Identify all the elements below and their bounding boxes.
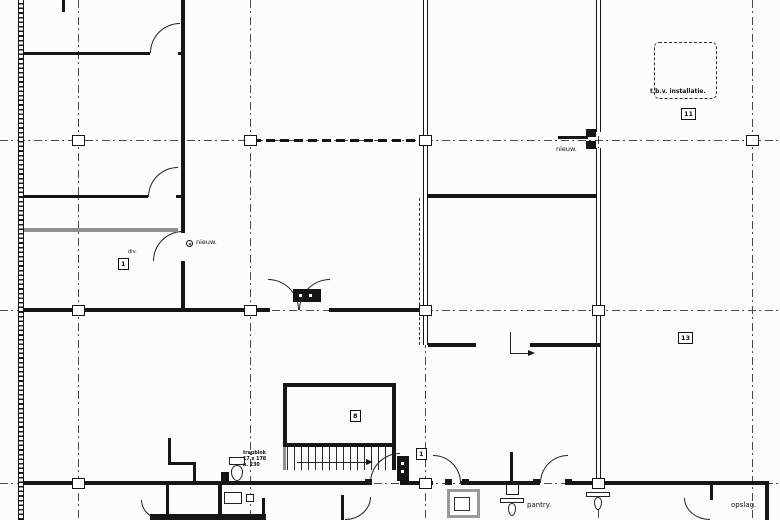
wall-segment bbox=[181, 0, 185, 233]
wall-segment bbox=[329, 308, 428, 312]
basin-fixture bbox=[224, 492, 242, 504]
wall-segment bbox=[24, 195, 148, 198]
gridline-vertical bbox=[78, 0, 79, 520]
door-jamb bbox=[565, 479, 572, 485]
door-arc bbox=[148, 167, 178, 197]
text-label: nieuw. bbox=[196, 239, 217, 246]
gridline-vertical bbox=[250, 0, 251, 520]
wall-segment bbox=[596, 148, 601, 485]
stair-treads bbox=[287, 447, 392, 470]
wall-segment bbox=[24, 481, 220, 485]
text-label: pantry. bbox=[527, 502, 551, 509]
text-label: 17 x 178 bbox=[243, 457, 266, 462]
wall-segment bbox=[765, 481, 769, 520]
wall-segment bbox=[24, 228, 178, 232]
wall-segment bbox=[24, 52, 150, 55]
section-arrow-line bbox=[510, 353, 528, 354]
plumb-symbol bbox=[594, 497, 602, 510]
section-arrow-icon bbox=[528, 350, 535, 356]
column-marker bbox=[419, 305, 432, 316]
column-marker bbox=[592, 305, 605, 316]
room-tag: 1 bbox=[416, 448, 427, 460]
wall-segment bbox=[510, 452, 513, 483]
stair-direction-line bbox=[297, 462, 366, 463]
column-marker bbox=[592, 478, 605, 489]
wall-segment bbox=[596, 0, 601, 132]
shaft-inner bbox=[454, 497, 470, 511]
wall-segment bbox=[181, 261, 185, 312]
wall-segment bbox=[392, 447, 396, 470]
small-fixture bbox=[246, 494, 254, 502]
section-arrow-line bbox=[510, 332, 511, 353]
door-jamb bbox=[533, 479, 540, 485]
column-marker bbox=[72, 305, 85, 316]
wall-segment bbox=[341, 495, 344, 520]
stair-direction-arrow-icon bbox=[366, 459, 373, 465]
wall-segment bbox=[193, 462, 196, 484]
wall-segment bbox=[710, 485, 713, 500]
demolition-dashed-line bbox=[252, 139, 422, 142]
door-arc bbox=[150, 23, 180, 53]
wall-segment bbox=[461, 481, 540, 485]
text-label: a. 230 bbox=[243, 463, 260, 468]
room-tag: 1 bbox=[118, 258, 129, 270]
column-marker bbox=[506, 484, 519, 495]
wall-segment bbox=[428, 194, 600, 198]
column-marker bbox=[72, 135, 85, 146]
door-arc bbox=[153, 231, 183, 261]
column-marker bbox=[419, 135, 432, 146]
text-label: div. bbox=[128, 250, 137, 255]
wall-segment bbox=[24, 308, 270, 312]
text-label: nieuw. bbox=[556, 146, 577, 153]
door-arc bbox=[345, 497, 371, 520]
gridline-vertical bbox=[752, 0, 753, 520]
floor-plan-canvas: nieuw.nieuw.pantry.opslag.t.b.v. install… bbox=[0, 0, 780, 520]
text-label: opslag. bbox=[731, 502, 756, 509]
wall-segment bbox=[62, 0, 65, 12]
wall-segment bbox=[150, 514, 266, 520]
column-marker bbox=[244, 305, 257, 316]
valve-icon bbox=[186, 240, 193, 247]
room-tag: 13 bbox=[678, 332, 693, 344]
column-marker bbox=[244, 135, 257, 146]
wall-segment bbox=[428, 343, 476, 347]
wc-fixture bbox=[231, 465, 243, 481]
plumb-symbol bbox=[508, 503, 516, 516]
wall-segment bbox=[283, 383, 287, 447]
wall-segment bbox=[283, 447, 286, 470]
wall-segment bbox=[220, 481, 370, 485]
wall-segment bbox=[168, 438, 171, 465]
wall-segment bbox=[419, 198, 421, 345]
column-marker bbox=[72, 478, 85, 489]
column-marker bbox=[419, 478, 432, 489]
door-jamb bbox=[365, 479, 372, 485]
electrical-cabinet bbox=[397, 456, 409, 481]
door-jamb bbox=[586, 129, 596, 137]
wall-segment bbox=[558, 136, 588, 139]
wall-segment bbox=[423, 0, 428, 345]
door-arc bbox=[540, 455, 568, 483]
door-arc bbox=[684, 498, 710, 520]
door-tag bbox=[293, 289, 321, 302]
wall-segment bbox=[168, 462, 196, 465]
wall-segment bbox=[530, 343, 600, 347]
wall-segment bbox=[18, 0, 24, 520]
room-tag: 11 bbox=[681, 108, 696, 120]
room-tag: 8 bbox=[350, 410, 361, 422]
wall-segment bbox=[262, 498, 265, 520]
door-jamb bbox=[586, 141, 596, 149]
text-label: trapblok bbox=[243, 451, 266, 456]
wall-segment bbox=[283, 383, 396, 387]
door-jamb bbox=[462, 479, 469, 485]
fixture-block bbox=[221, 472, 229, 483]
column-marker bbox=[746, 135, 759, 146]
wall-segment bbox=[283, 443, 396, 447]
wall-segment bbox=[392, 383, 396, 447]
text-label: t.b.v. installatie. bbox=[650, 89, 706, 95]
door-jamb bbox=[445, 479, 452, 485]
